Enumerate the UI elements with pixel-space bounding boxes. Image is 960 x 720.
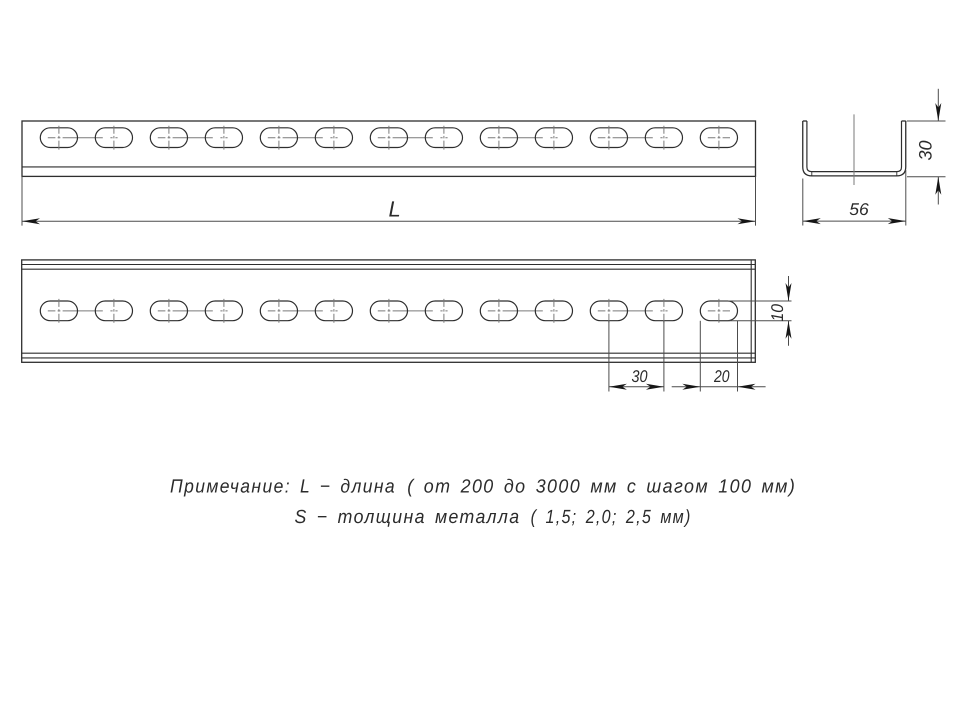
svg-text:56: 56 xyxy=(849,200,869,219)
svg-text:30: 30 xyxy=(632,367,648,386)
svg-text:S − толщина металла: S − толщина металла xyxy=(295,507,521,528)
svg-text:30: 30 xyxy=(916,141,936,161)
svg-text:L: L xyxy=(389,197,401,222)
svg-text:10: 10 xyxy=(768,304,787,322)
svg-text:( от 200 до 3000 мм с шагом 10: ( от 200 до 3000 мм с шагом 100 мм) xyxy=(407,476,796,497)
svg-text:20: 20 xyxy=(713,367,730,386)
svg-text:( 1,5; 2,0; 2,5 мм): ( 1,5; 2,0; 2,5 мм) xyxy=(531,507,692,528)
svg-text:Примечание: L − длина: Примечание: L − длина xyxy=(170,476,396,497)
